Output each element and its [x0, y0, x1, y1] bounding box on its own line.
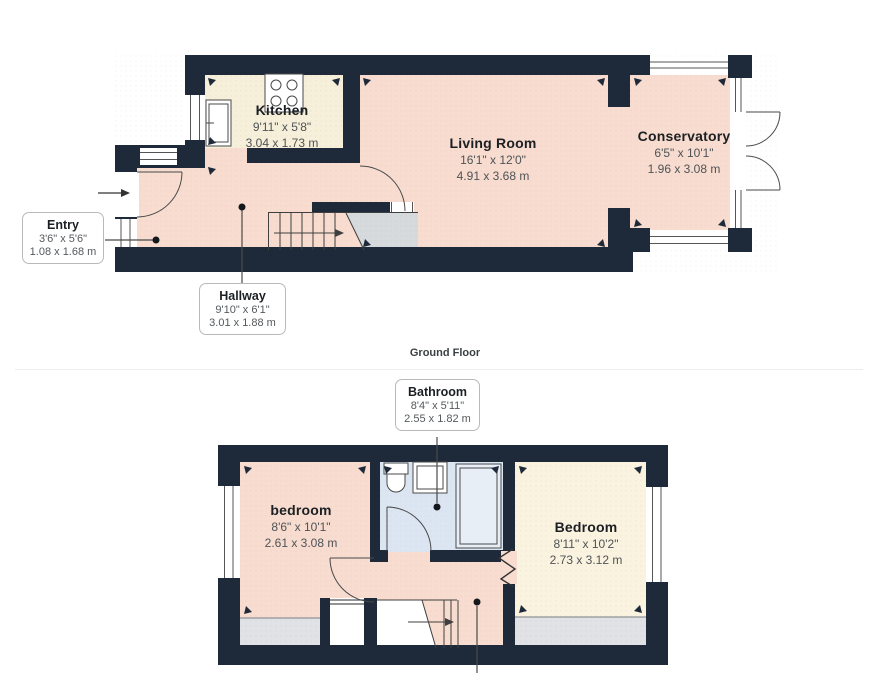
first-floor-plan — [218, 437, 668, 673]
shower-icon — [456, 464, 501, 548]
entry-dims-metric: 1.08 x 1.68 m — [25, 246, 101, 258]
hallway-callout: Hallway 9'10" x 6'1" 3.01 x 1.88 m — [199, 283, 286, 335]
entry-leader-dot — [153, 237, 160, 244]
conservatory-top-window-icon — [650, 57, 728, 73]
hallway-dims-metric: 3.01 x 1.88 m — [202, 317, 283, 329]
conservatory-right-window-upper-icon — [730, 78, 746, 112]
bathroom-callout: Bathroom 8'4" x 5'11" 2.55 x 1.82 m — [395, 379, 480, 431]
ground-floor-caption: Ground Floor — [410, 347, 480, 359]
conservatory-bottom-window-icon — [650, 230, 728, 250]
living-room-doorway-sill — [390, 202, 414, 212]
entry-dims-imperial: 3'6" x 5'6" — [25, 233, 101, 245]
hob-icon — [265, 74, 303, 112]
bathroom-dims-imperial: 8'4" x 5'11" — [398, 400, 477, 412]
floorplan-drawing — [0, 0, 878, 673]
bathroom-dims-metric: 2.55 x 1.82 m — [398, 413, 477, 425]
french-door-gap — [730, 112, 746, 190]
bedroom-left-window-icon — [218, 486, 240, 578]
entry-top-window-icon — [140, 148, 177, 165]
washbasin-icon — [413, 462, 447, 493]
floorplan-page: Kitchen 9'11" x 5'8" 3.04 x 1.73 m Livin… — [0, 0, 878, 673]
conservatory-right-window-lower-icon — [730, 190, 746, 228]
hallway-dims-imperial: 9'10" x 6'1" — [202, 304, 283, 316]
entry-side-window-icon — [115, 219, 137, 247]
entry-name: Entry — [25, 218, 101, 232]
section-divider — [15, 369, 863, 370]
cupboard-a — [330, 598, 364, 648]
landing-leader-dot — [474, 599, 481, 606]
kitchen-window-icon — [185, 95, 205, 140]
ground-floor-plan — [98, 55, 780, 283]
bathroom-name: Bathroom — [398, 385, 477, 399]
bathroom-leader-dot — [434, 504, 441, 511]
bedroom-right-window-icon — [646, 487, 668, 582]
entry-callout: Entry 3'6" x 5'6" 1.08 x 1.68 m — [22, 212, 104, 264]
stair-rail-block — [312, 202, 390, 212]
hallway-name: Hallway — [202, 289, 283, 303]
hallway-leader-dot — [239, 204, 246, 211]
wall-break-icon — [499, 549, 517, 587]
